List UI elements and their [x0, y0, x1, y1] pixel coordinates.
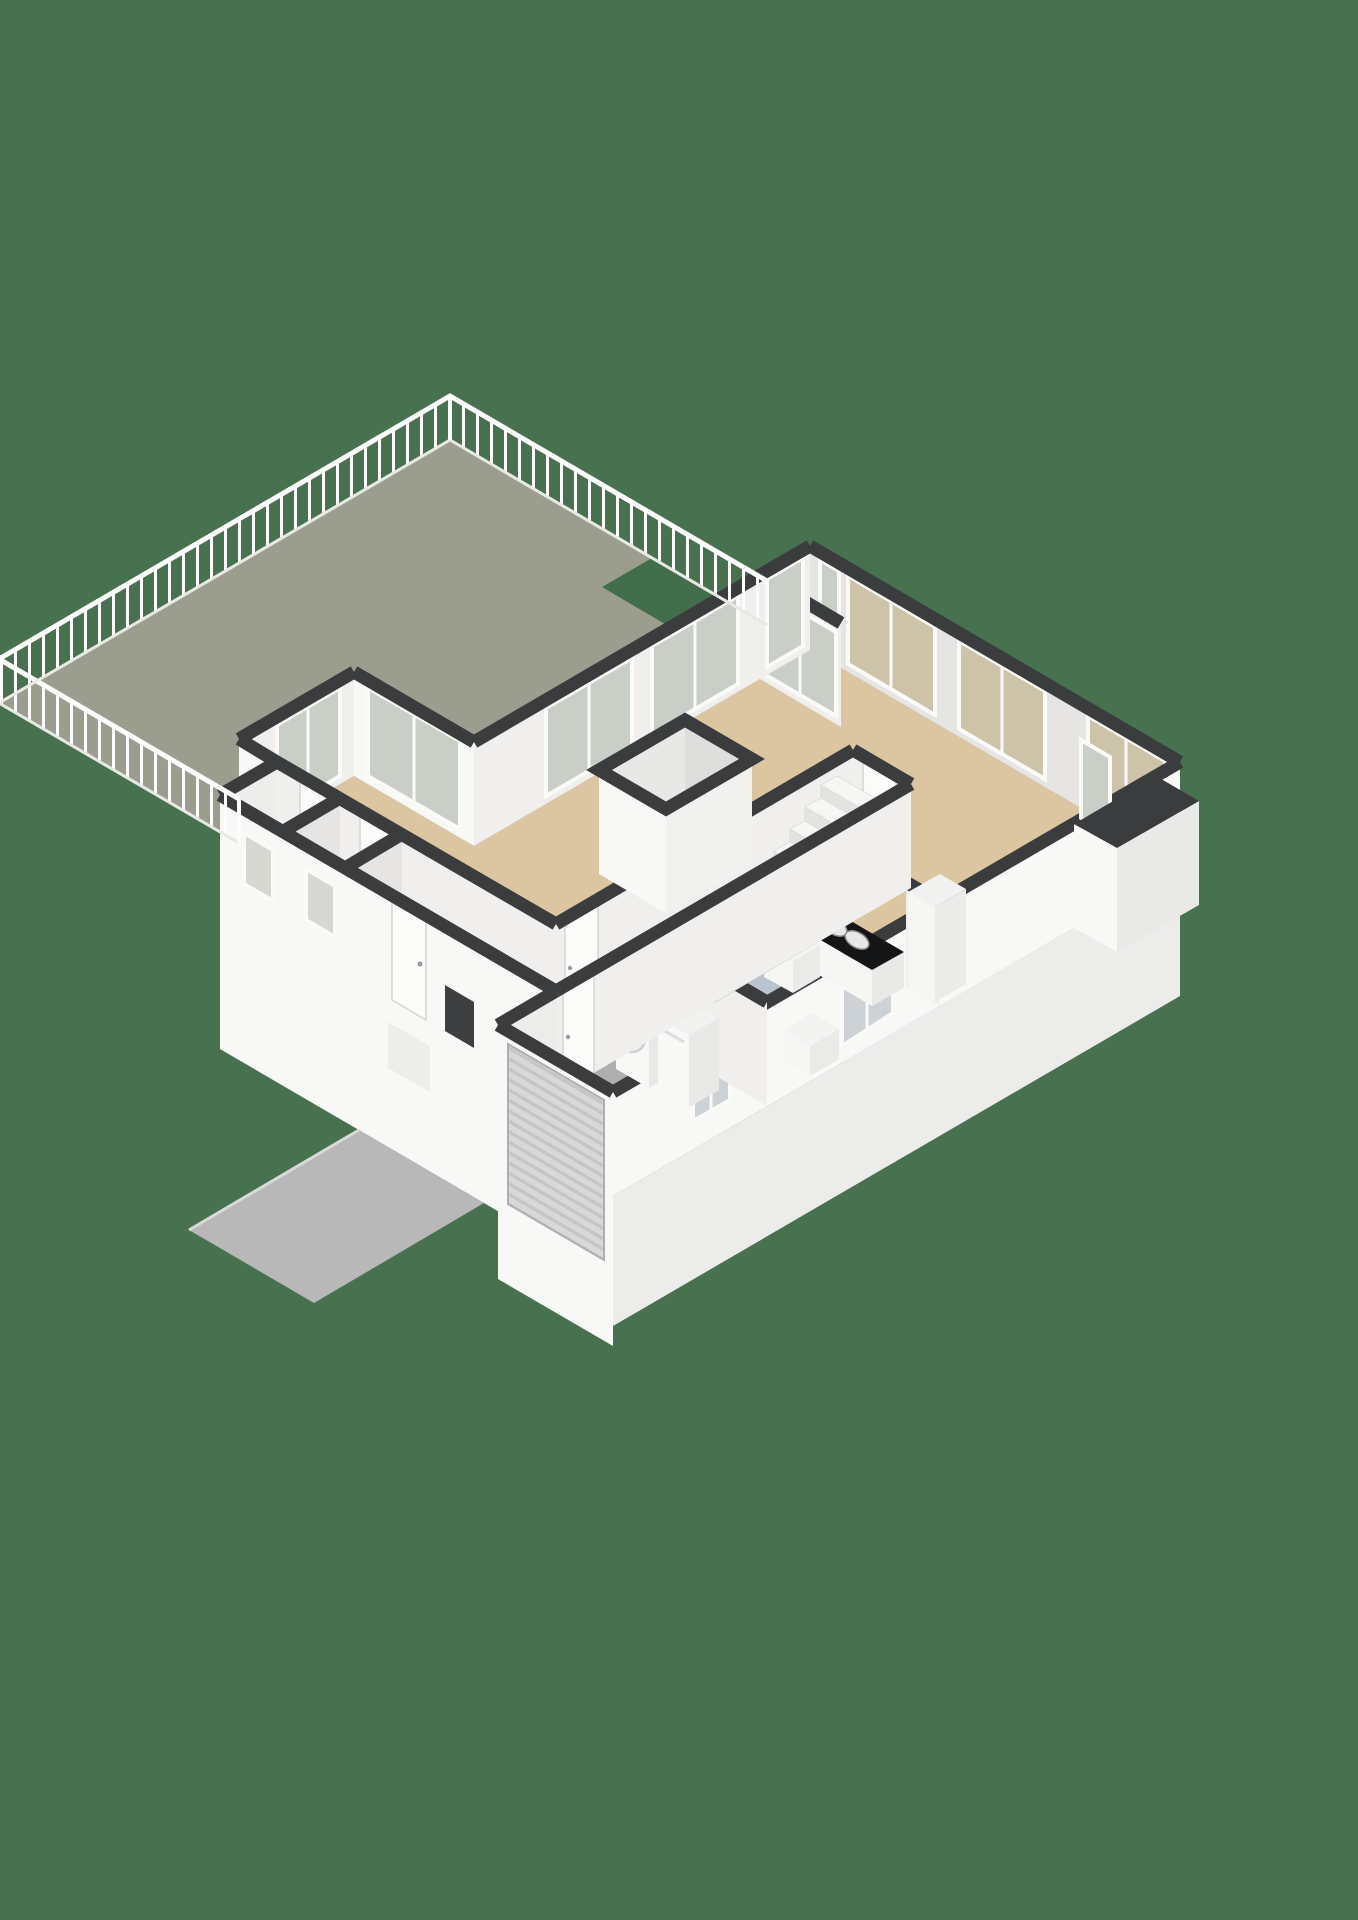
- floorplan-3d-render: [0, 0, 1358, 1920]
- tall-cabinet: [908, 874, 966, 1002]
- door-handle: [568, 966, 572, 970]
- floorplan-stage: [0, 0, 1358, 1920]
- door-handle: [566, 1035, 570, 1039]
- front-door-handle: [418, 962, 423, 967]
